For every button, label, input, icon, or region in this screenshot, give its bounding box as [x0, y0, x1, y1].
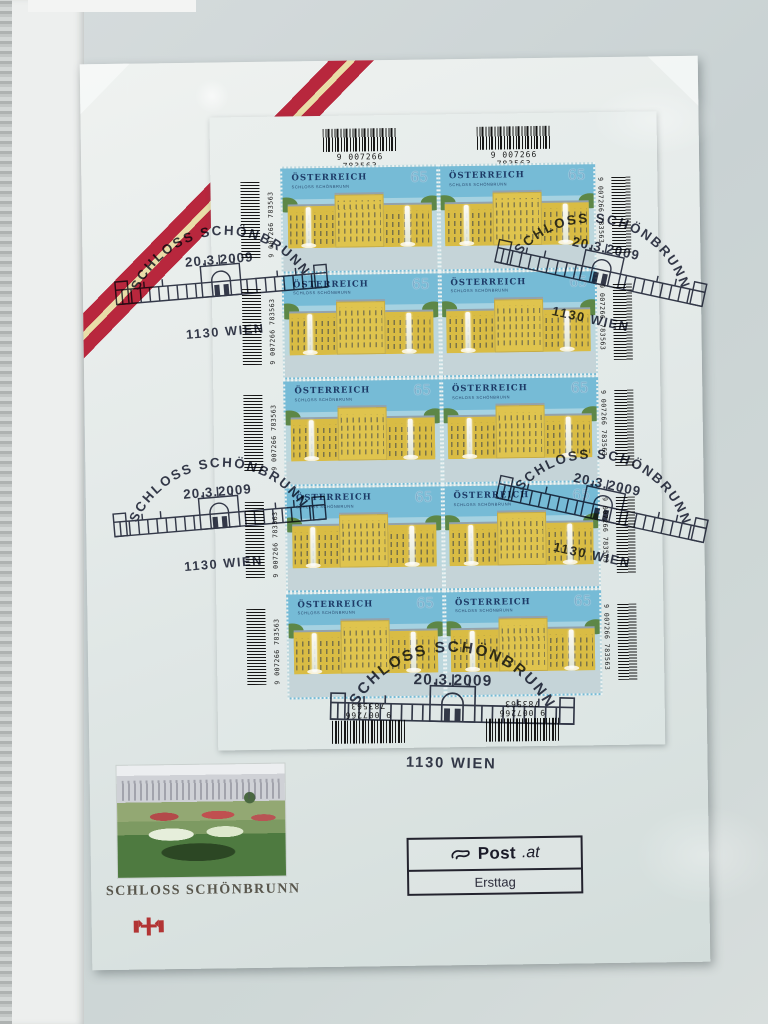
barcode-bars [617, 604, 637, 680]
stamp-title-label: SCHLOSS SCHÖNBRUNN [449, 181, 507, 187]
stamp-country-label: ÖSTERREICH [294, 386, 370, 397]
sleeve-band [12, 0, 84, 1024]
barcode-number: 9 007266 783563 [272, 609, 281, 685]
stamp-title-label: SCHLOSS SCHÖNBRUNN [298, 610, 356, 616]
stamp-title-label: SCHLOSS SCHÖNBRUNN [295, 397, 353, 403]
fountain-icon [465, 312, 471, 351]
album-page-photo: 9 007266 783563 9 007266 783563 9 007266… [0, 0, 768, 1024]
stamp-denomination: 65 [416, 596, 434, 612]
stamp-country-label: ÖSTERREICH [452, 383, 528, 394]
stamp-denomination: 65 [574, 594, 592, 610]
fountain-icon [312, 633, 318, 672]
barcode-number: 9 007266 783563 [602, 604, 611, 680]
barcode-bars [477, 126, 551, 150]
fountain-icon [468, 525, 474, 564]
post-logo-bold-text: Post [478, 843, 516, 864]
first-day-label: Ersttag [409, 867, 581, 893]
first-day-postmark: SCHLOSS SCHÖNBRUNN 20.3.2009 1130 WIEN [327, 619, 578, 780]
palace-center-block [339, 514, 389, 568]
fountain-icon [463, 205, 469, 244]
palace-center-block [338, 407, 388, 461]
photo-corner-mount [80, 64, 131, 115]
barcode-right-margin: 9 007266 783563 [604, 604, 639, 680]
first-day-postmark: SCHLOSS SCHÖNBRUNN 20.3.2009 1130 WIEN [107, 200, 334, 353]
post-logo-suffix-text: .at [522, 844, 540, 862]
fountain-icon [466, 418, 472, 457]
photo-caption: SCHLOSS SCHÖNBRUNN [105, 881, 301, 900]
courtyard [442, 351, 596, 376]
fountain-icon [410, 526, 416, 565]
album-brand-logo-icon [132, 914, 166, 938]
photo-corner-mount [648, 56, 699, 107]
posthorn-icon [450, 847, 472, 861]
stamp-denomination: 65 [412, 276, 430, 292]
palace-center-block [336, 301, 386, 355]
postmark-city: 1130 WIEN [184, 553, 264, 575]
stamp-denomination: 65 [568, 167, 586, 183]
courtyard [445, 564, 599, 589]
post-at-logo: Post.at [409, 837, 581, 869]
stamp-title-label: SCHLOSS SCHÖNBRUNN [452, 394, 510, 400]
fountain-icon [408, 419, 414, 458]
courtyard [285, 353, 439, 378]
stamp-title-label: SCHLOSS SCHÖNBRUNN [455, 608, 513, 614]
stamp-country-label: ÖSTERREICH [455, 597, 531, 608]
barcode-bars [246, 609, 266, 685]
first-day-cachet-box: Post.at Ersttag [407, 835, 584, 895]
stamp-denomination: 65 [571, 381, 589, 397]
album-card: 9 007266 783563 9 007266 783563 9 007266… [80, 56, 711, 971]
barcode-left-margin: 9 007266 783563 [244, 609, 279, 685]
stamp-title-label: SCHLOSS SCHÖNBRUNN [292, 183, 350, 189]
stamp-country-label: ÖSTERREICH [291, 172, 367, 183]
palace-center-block [335, 194, 385, 248]
postmark-city: 1130 WIEN [406, 755, 497, 773]
courtyard [288, 566, 442, 591]
stamp-denomination: 65 [410, 170, 428, 186]
barcode-bars [323, 128, 397, 152]
first-day-postmark: SCHLOSS SCHÖNBRUNN 20.3.2009 1130 WIEN [106, 432, 333, 585]
schoenbrunn-garden-photo [117, 764, 287, 878]
postmark-city: 1130 WIEN [185, 320, 265, 342]
stamp-denomination: 65 [415, 489, 433, 505]
stamp-country-label: ÖSTERREICH [297, 599, 373, 610]
sleeve-top-strip [28, 0, 196, 12]
stamp-denomination: 65 [413, 383, 431, 399]
